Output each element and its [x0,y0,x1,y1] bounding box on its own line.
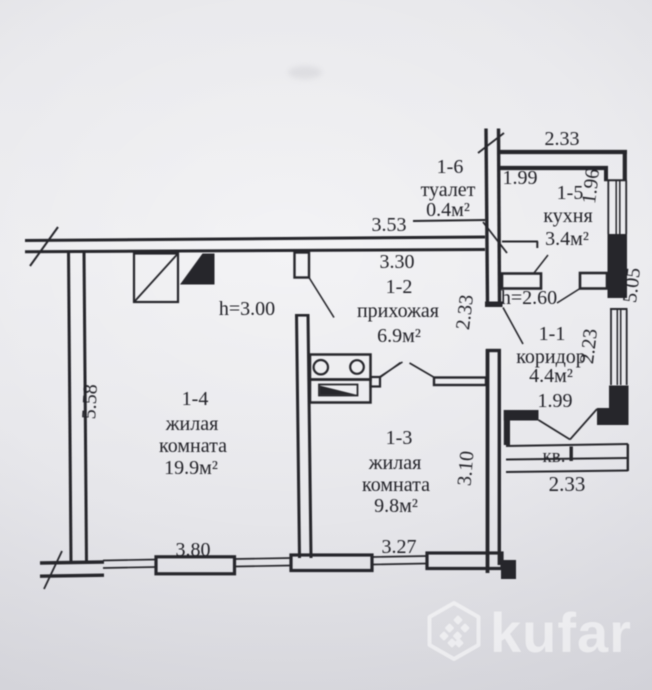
svg-text:4.4м²: 4.4м² [529,365,573,387]
svg-text:1.99: 1.99 [538,390,573,412]
svg-text:0.4м²: 0.4м² [426,199,470,221]
svg-text:2.23: 2.23 [576,328,602,365]
svg-text:19.9м²: 19.9м² [164,457,218,479]
svg-text:комната: комната [159,435,227,457]
svg-text:kufar: kufar [490,601,632,664]
svg-text:9.8м²: 9.8м² [374,495,418,517]
svg-text:туалет: туалет [421,179,476,201]
svg-text:1-6: 1-6 [437,156,464,178]
svg-text:3.53: 3.53 [372,214,407,236]
svg-text:5.05: 5.05 [619,267,645,304]
svg-text:2.33: 2.33 [545,128,580,150]
svg-text:6.9м²: 6.9м² [377,325,421,347]
svg-text:кухня: кухня [543,205,592,227]
svg-text:3.80: 3.80 [176,539,211,561]
svg-text:прихожая: прихожая [357,300,439,322]
svg-text:жилая: жилая [165,413,219,435]
svg-text:1-2: 1-2 [386,276,413,298]
svg-text:3.10: 3.10 [454,450,479,487]
svg-text:2.33: 2.33 [549,472,586,496]
svg-text:3.30: 3.30 [380,251,415,273]
svg-text:жилая: жилая [368,452,422,474]
svg-text:3.4м²: 3.4м² [545,228,589,250]
svg-text:1-1: 1-1 [539,323,566,345]
svg-text:кв.: кв. [543,446,566,467]
svg-text:1.99: 1.99 [503,167,538,189]
svg-text:3.27: 3.27 [382,536,417,558]
svg-text:1-4: 1-4 [182,388,209,410]
svg-text:h=2.60: h=2.60 [501,287,557,309]
svg-text:комната: комната [362,474,430,496]
svg-text:2.33: 2.33 [452,294,478,331]
svg-text:h=3.00: h=3.00 [219,298,275,320]
svg-text:5.58: 5.58 [78,384,102,420]
svg-text:1-5: 1-5 [557,182,584,204]
svg-text:1-3: 1-3 [386,427,413,449]
